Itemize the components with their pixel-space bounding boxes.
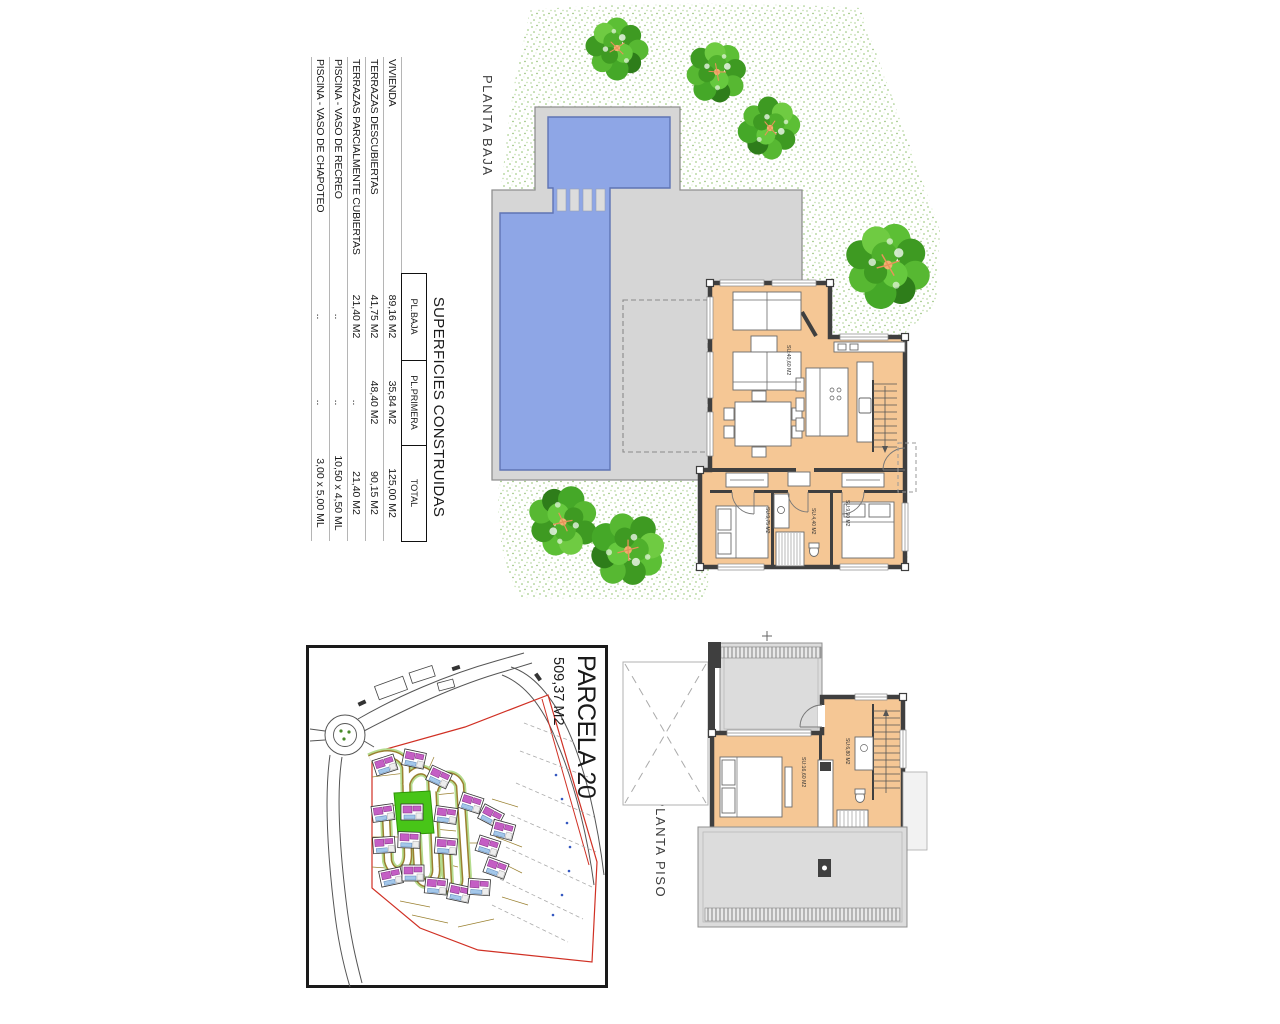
- bath-vanity: [855, 737, 873, 770]
- surfaces-table-title: SUPERFICIES CONSTRUIDAS: [430, 273, 447, 541]
- upper-floor-plan: SU:16,60 M2 SU:6,80 M2: [615, 628, 960, 938]
- cell: 90,15 M2: [366, 445, 384, 541]
- row-label: VIVIENDA: [384, 57, 402, 273]
- upper-terrace-bottom: [698, 827, 907, 927]
- railing: [721, 647, 821, 658]
- cell: 125,00 M2: [384, 445, 402, 541]
- cell: 21,40 M2: [348, 445, 366, 541]
- table-header-row: PL.BAJA PL.PRIMERA TOTAL: [402, 57, 427, 541]
- coffee-table: [751, 336, 777, 352]
- header-pl-baja: PL.BAJA: [402, 273, 427, 360]
- plan-sheet: SUPERFICIES CONSTRUIDAS PL.BAJA PL.PRIME…: [0, 0, 1280, 1024]
- dining-table: [735, 402, 791, 446]
- header-pl-primera: PL.PRIMERA: [402, 360, 427, 445]
- table-row: VIVIENDA 89,16 M2 35,84 M2 125,00 M2: [384, 57, 402, 541]
- table-row: TERRAZAS PARCIALMENTE CUBIERTAS 21,40 M2…: [348, 57, 366, 541]
- header-total: TOTAL: [402, 445, 427, 541]
- bench: [785, 767, 792, 807]
- bathroom-area-label: SU:4,40 M2: [810, 508, 816, 535]
- cell: ..: [312, 360, 330, 445]
- upper-bathroom-area-label: SU:6,80 M2: [844, 738, 850, 765]
- table-row: PISCINA - VASO DE RECREO .. .. 10,50 x 4…: [330, 57, 348, 541]
- cell: 41,75 M2: [366, 273, 384, 360]
- cell: 48,40 M2: [366, 360, 384, 445]
- hall-console: [788, 472, 810, 486]
- roundabout: [325, 715, 365, 755]
- parcel-area: 509,37 M2: [550, 657, 566, 726]
- cell: ..: [330, 360, 348, 445]
- villa-parcel-20: [401, 804, 423, 820]
- bedroom-right-area-label: SU:9,90 M2: [844, 500, 850, 527]
- kitchen-island: [806, 368, 848, 436]
- cell: ..: [348, 360, 366, 445]
- table-row: PISCINA - VASO DE CHAPOTEO .. .. 3,00 x …: [312, 57, 330, 541]
- row-label: TERRAZAS DESCUBIERTAS: [366, 57, 384, 273]
- ground-floor-plan: SU:40,60 M2 SU:9,75 M2 SU:4,40 M2 SU:9,9…: [470, 0, 950, 615]
- parcel-title: PARCELA 20: [572, 655, 600, 798]
- cell: ..: [312, 273, 330, 360]
- cell: 89,16 M2: [384, 273, 402, 360]
- surfaces-table: SUPERFICIES CONSTRUIDAS PL.BAJA PL.PRIME…: [311, 57, 447, 541]
- bath-vanity: [774, 494, 789, 528]
- cell: 21,40 M2: [348, 273, 366, 360]
- sink: [859, 398, 871, 413]
- site-plan: PARCELA 20 509,37 M2: [306, 645, 608, 988]
- upper-bedroom-area-label: SU:16,60 M2: [800, 757, 806, 787]
- shower: [837, 810, 868, 828]
- cell: 10,50 x 4,50 ML: [330, 445, 348, 541]
- upper-terrace-top: [708, 631, 822, 738]
- row-label: PISCINA - VASO DE RECREO: [330, 57, 348, 273]
- cell: ..: [330, 273, 348, 360]
- bedroom-left-area-label: SU:9,75 M2: [764, 507, 770, 534]
- header-empty-cell: [402, 57, 427, 273]
- table-row: TERRAZAS DESCUBIERTAS 41,75 M2 48,40 M2 …: [366, 57, 384, 541]
- cell: 35,84 M2: [384, 360, 402, 445]
- railing: [705, 908, 900, 921]
- living-room-area-label: SU:40,60 M2: [785, 345, 791, 375]
- roof-below-outline: [623, 662, 708, 805]
- cell: 3,00 x 5,00 ML: [312, 445, 330, 541]
- row-label: TERRAZAS PARCIALMENTE CUBIERTAS: [348, 57, 366, 273]
- row-label: PISCINA - VASO DE CHAPOTEO: [312, 57, 330, 273]
